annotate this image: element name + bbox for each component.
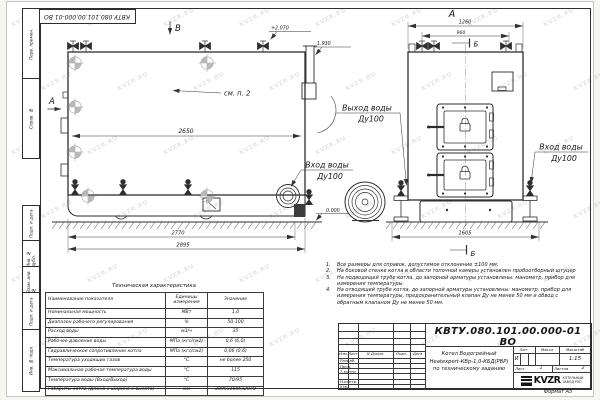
rear-flange [277, 185, 306, 218]
document-number: КВТУ.080.101.00.000-01 ВО [426, 326, 590, 345]
company-logo: KVZR КОТЕЛЬНЫЙ ЗАВОД РЭП [513, 372, 591, 389]
rev-col: Лист [348, 352, 358, 356]
format-label: Формат А3 [528, 389, 588, 395]
note-item: 4.На отводящей трубе котла, до запорной … [326, 287, 586, 306]
sheets-label: Листов [554, 366, 574, 371]
label-water-inlet-right-dn: Ду100 [550, 154, 577, 163]
dim-2895: 2895 [176, 243, 190, 249]
label-water-inlet-dn: Ду100 [316, 172, 343, 181]
col-header: Наименование показателя [46, 293, 166, 309]
notes-list: 1.Все размеры для справок, допустимое от… [326, 262, 586, 306]
lit-label: Лит. [513, 347, 535, 352]
divider [339, 338, 425, 339]
elev-zero: 0.000 [326, 208, 340, 214]
dim-2650: 2650 [178, 128, 193, 135]
side-view [61, 46, 336, 219]
rev-col: N Докум. [358, 352, 393, 356]
kvzr-logo-icon [521, 376, 532, 386]
table-row: Максимальная рабочая температура воды°С1… [46, 367, 264, 377]
label-water-outlet: Выход воды [342, 104, 392, 113]
right-pipe-foot [523, 196, 537, 221]
sheet-value: 1 [535, 366, 547, 371]
label-water-inlet: Вход воды [305, 161, 349, 170]
label-water-outlet-dn: Ду100 [357, 115, 384, 124]
kvzr-logo-text: KVZR [534, 375, 561, 386]
divider [339, 344, 425, 345]
view-mark-b: В [175, 24, 181, 34]
lower-door [427, 153, 494, 197]
fan-blower [345, 182, 385, 222]
elev-mid: 1.930 [317, 41, 331, 47]
table-row: Температура уходящих газов°Сне более 250 [46, 357, 264, 367]
lit-value: И [513, 356, 520, 362]
sig-row: Утв. [340, 384, 358, 389]
note-ref: см. п. 2 [224, 90, 250, 98]
note-item: 3.На подводящей трубе котла, до запорной… [326, 275, 586, 288]
rev-col: Подп. [393, 352, 410, 356]
mass-label: Масса [535, 347, 559, 352]
scale-value: 1:15 [559, 356, 591, 362]
divider [513, 353, 591, 354]
dim-1260: 1260 [459, 20, 472, 26]
divider [520, 353, 521, 366]
front-view [394, 44, 537, 231]
rev-col: Дата [410, 352, 425, 356]
table-row: Габариты котла (Длина х ширина х высота)… [46, 386, 264, 396]
rev-col: Изм. [339, 352, 348, 356]
view-mark-a: А [48, 97, 55, 107]
table-row: Рабочее давление водыМПа (кгс/см2)0,6 (6… [46, 338, 264, 348]
left-pipe-foot [394, 196, 408, 221]
rear-door [302, 83, 336, 133]
dim-960: 960 [457, 30, 466, 36]
section-mark-bottom: Б [471, 250, 476, 258]
divider [339, 331, 425, 332]
scale-label: Масштаб [559, 347, 591, 352]
table-row: Гидравлическое сопротивление котлаМПа (к… [46, 347, 264, 357]
table-title: Техническая характеристика [45, 283, 263, 289]
table-row: Расход водым3/ч35 [46, 328, 264, 338]
doc-title-line: Heatexpert-КВр-1,0-КБД(РВР) [426, 359, 512, 365]
label-water-inlet-right: Вход воды [539, 143, 583, 152]
sheets-value: 2 [577, 366, 589, 371]
divider [393, 324, 394, 389]
front-view-title: А [448, 9, 456, 20]
col-header: Единицы измерения [166, 293, 208, 309]
col-header: Значение [208, 293, 264, 309]
divider [410, 324, 411, 389]
section-mark-top: Б [474, 41, 479, 49]
table-header-row: Наименование показателя Единицы измерени… [46, 293, 264, 309]
elev-top: +2.070 [271, 26, 289, 32]
dim-1605: 1605 [458, 231, 472, 237]
lock-icon [460, 166, 470, 179]
divider [528, 353, 529, 366]
kvzr-logo-subtext: КОТЕЛЬНЫЙ ЗАВОД РЭП [563, 377, 584, 384]
table-row: Номинальная мощностьМВт1,0 [46, 309, 264, 319]
sig-row: Т.контр. [340, 369, 358, 374]
extension-lines [68, 22, 539, 253]
doc-title-line: по техническому заданию [426, 366, 512, 372]
dim-2770: 2770 [171, 231, 185, 237]
divider [358, 324, 359, 389]
table-row: Диапазон рабочего регулирования%50-100 [46, 318, 264, 328]
divider [552, 365, 553, 372]
ground [52, 222, 548, 229]
doc-title-line: Котел Водогрейный [426, 351, 512, 357]
sig-row: Разраб. [340, 358, 358, 363]
control-box [492, 72, 513, 91]
leaders [48, 22, 589, 255]
valves [68, 41, 512, 205]
upper-door [427, 104, 494, 150]
front-base [420, 201, 512, 222]
sheet-label: Лист [515, 366, 531, 371]
lock-icon [460, 118, 470, 131]
tech-characteristics-table: Наименование показателя Единицы измерени… [45, 292, 264, 396]
title-block: Изм. Лист N Докум. Подп. Дата Разраб. Пр… [338, 323, 592, 390]
table-row: Температура воды (Вход/Выход)°С70/95 [46, 376, 264, 386]
